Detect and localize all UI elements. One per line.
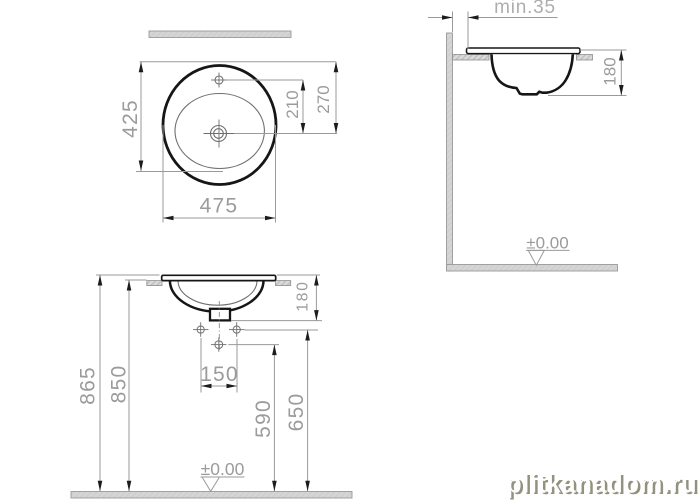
svg-text:590: 590 xyxy=(252,399,275,438)
svg-text:min.35: min.35 xyxy=(494,0,556,18)
svg-text:±0.00: ±0.00 xyxy=(201,459,245,479)
svg-text:180: 180 xyxy=(601,57,620,85)
svg-text:425: 425 xyxy=(119,99,142,138)
svg-text:865: 865 xyxy=(77,366,100,405)
svg-text:210: 210 xyxy=(283,90,302,118)
svg-text:475: 475 xyxy=(200,195,239,218)
svg-text:850: 850 xyxy=(108,365,131,404)
svg-text:plitkanadom.ru: plitkanadom.ru xyxy=(506,471,697,499)
svg-text:150: 150 xyxy=(200,363,239,386)
svg-text:±0.00: ±0.00 xyxy=(526,234,568,253)
svg-text:270: 270 xyxy=(314,85,333,113)
svg-text:650: 650 xyxy=(285,393,308,432)
svg-text:180: 180 xyxy=(294,280,311,311)
